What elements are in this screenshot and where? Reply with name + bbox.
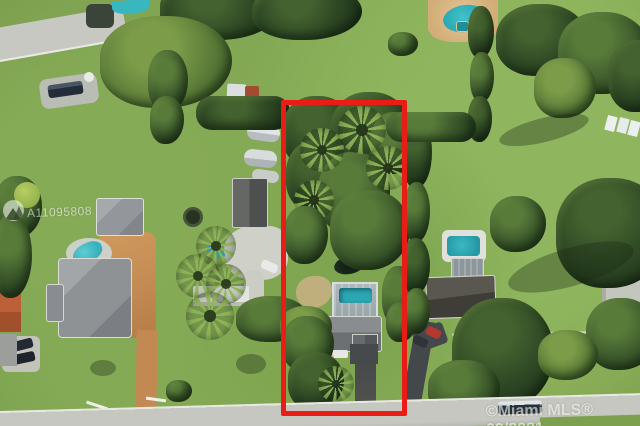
lawn-tuft [166,380,192,402]
lawn-tuft [90,360,116,376]
lounge-chair [627,120,640,137]
house-roof-mid [232,178,268,228]
tree [150,96,184,144]
house-roof-large [58,258,132,338]
rv [243,148,278,168]
listing-id-watermark: A11095808 [27,204,92,220]
hedge [470,52,494,102]
house-wing [46,284,64,322]
attribution-watermark: ©Miami MLS® 09/2021 [486,401,640,426]
pool-right [447,236,480,256]
tree-shadow [496,107,591,153]
hedge [196,96,290,130]
hedge [468,6,494,58]
tree [534,58,596,118]
lawn-tuft [236,354,266,374]
aerial-photo: A11095808 ©Miami MLS® 09/2021 [0,0,640,426]
mls-logo-peaks [13,206,24,220]
trampoline [183,207,203,227]
tree [252,0,362,40]
palm-tree [186,292,234,340]
tree [490,196,546,252]
neighbor-roof-terracotta [0,292,21,332]
house-roof-small [96,198,144,236]
hedge [404,182,430,242]
mls-logo-watermark [3,200,24,221]
property-boundary-outline [281,100,407,416]
sprinkler-dome [84,72,94,82]
tree [388,32,418,56]
palapa-structure [86,4,114,28]
neighbor-roof-gray [0,334,17,366]
tree [538,330,598,380]
